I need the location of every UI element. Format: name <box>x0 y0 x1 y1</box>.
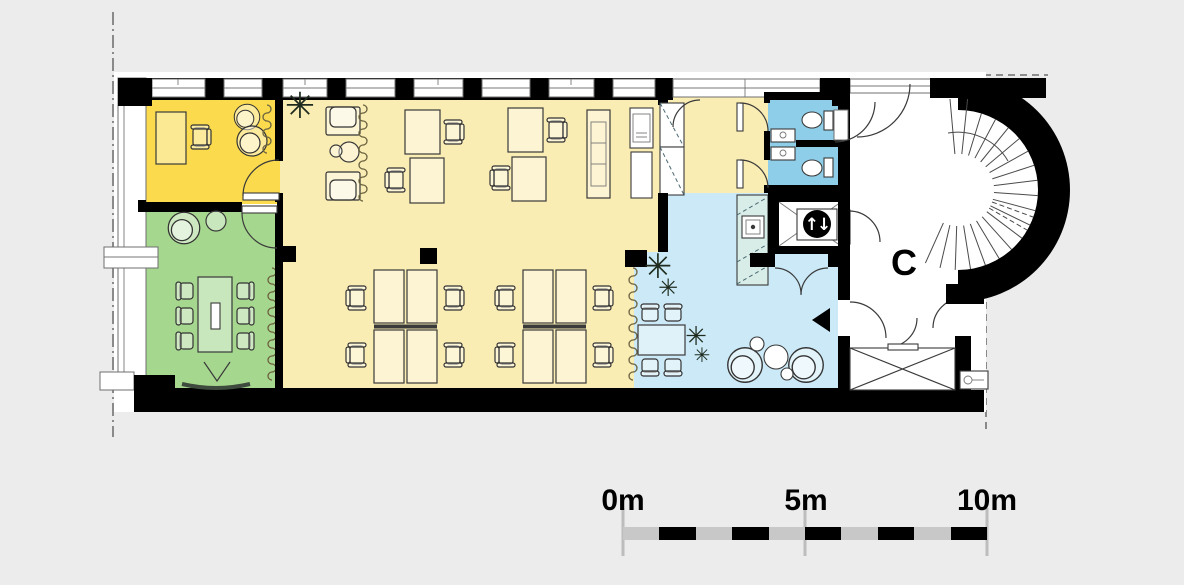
lounge-chair <box>728 348 763 383</box>
scale-bar: 0m 5m 10m <box>601 484 1017 556</box>
task-chair <box>346 343 366 367</box>
dining-chair <box>641 359 659 376</box>
meeting-chair <box>176 332 193 350</box>
task-chair <box>593 343 613 367</box>
sink-icon <box>771 147 795 160</box>
column <box>420 248 437 264</box>
scale-bar-segment <box>805 527 841 540</box>
door-leaf <box>242 206 277 213</box>
radiator <box>834 110 848 140</box>
dining-chair <box>664 359 682 376</box>
window-sill-bay <box>104 247 158 268</box>
cabinet <box>631 152 652 198</box>
task-chair <box>495 286 515 310</box>
door-leaf <box>888 344 918 350</box>
task-chair <box>495 343 515 367</box>
task-chair <box>385 168 405 192</box>
door-leaf <box>737 103 743 131</box>
desk <box>410 158 444 203</box>
toilet-icon <box>802 158 833 177</box>
lounge-chair <box>789 348 824 383</box>
office-lounge-chair <box>237 126 267 156</box>
sink-icon <box>771 129 795 142</box>
scale-label-5m: 5m <box>784 484 827 517</box>
coffee-table <box>330 145 342 157</box>
task-chair <box>547 118 567 142</box>
door-leaf <box>737 160 743 188</box>
bookshelf <box>587 110 610 198</box>
armchair-icon <box>326 172 360 200</box>
column <box>280 246 296 262</box>
task-chair <box>444 120 464 144</box>
scale-bar-segment <box>951 527 987 540</box>
desk <box>512 157 546 201</box>
stair-hall-label: C <box>891 242 917 283</box>
meeting-chair <box>237 282 254 300</box>
task-chair <box>444 343 464 367</box>
side-table <box>781 368 793 380</box>
meeting-table-inset <box>211 303 220 329</box>
meeting-chair <box>237 307 254 325</box>
side-table <box>764 345 788 369</box>
side-table <box>750 337 764 351</box>
desk <box>405 110 440 154</box>
task-chair <box>444 286 464 310</box>
desk <box>508 108 543 152</box>
meeting-chair <box>237 332 254 350</box>
scale-bar-segment <box>732 527 769 540</box>
plant-icon: ✳ <box>694 343 711 367</box>
dining-chair <box>641 304 659 321</box>
floor-plan-canvas: ✳ <box>0 0 1184 585</box>
faucet <box>751 225 755 229</box>
floor-plan-page: ✳ <box>0 0 1184 585</box>
scale-label-10m: 10m <box>957 484 1017 517</box>
scale-bar-segment <box>878 527 914 540</box>
plant-icon: ✳ <box>285 86 315 127</box>
meeting-stool <box>206 211 226 231</box>
meeting-chair <box>176 282 193 300</box>
scale-label-0m: 0m <box>601 484 644 517</box>
plant-icon: ✳ <box>658 274 678 302</box>
meeting-chair <box>176 307 193 325</box>
task-chair <box>490 166 510 190</box>
stair-center-void <box>922 154 994 226</box>
kitchen-counter <box>737 195 768 285</box>
task-chair <box>593 286 613 310</box>
armchair-icon <box>326 107 360 135</box>
meeting-lounge-chair <box>168 212 200 244</box>
elevator-arrows-icon: ↑↓ <box>805 215 830 235</box>
scale-bar-segment <box>659 527 696 540</box>
task-chair <box>346 286 366 310</box>
dining-chair <box>664 304 682 321</box>
office-task-chair <box>191 125 211 149</box>
office-desk <box>156 112 186 164</box>
door-leaf <box>243 193 279 200</box>
dining-table <box>638 325 685 355</box>
toilet-icon <box>802 111 833 130</box>
